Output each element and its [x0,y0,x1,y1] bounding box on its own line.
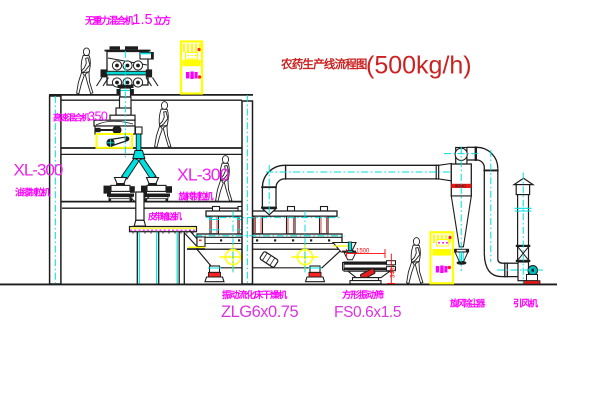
svg-text:1500: 1500 [356,248,370,254]
svg-text:皮带输送机: 皮带输送机 [147,211,182,222]
svg-text:ZLG6x0.75: ZLG6x0.75 [221,303,298,321]
svg-text:Φ600: Φ600 [455,184,466,189]
svg-text:振动流化床干燥机: 振动流化床干燥机 [222,289,288,300]
svg-text:引风机: 引风机 [513,298,539,309]
svg-text:旋转制粒机: 旋转制粒机 [178,191,214,202]
svg-text:农药生产线流程图: 农药生产线流程图 [280,57,367,71]
svg-text:(500kg/h): (500kg/h) [366,52,472,80]
svg-text:方形振动筛: 方形振动筛 [342,289,384,300]
svg-text:348: 348 [391,267,397,278]
svg-text:油漆制粒机: 油漆制粒机 [15,187,50,198]
svg-text:XL-300: XL-300 [14,161,63,180]
svg-text:XL-300: XL-300 [177,165,230,185]
svg-text:旋风除尘器: 旋风除尘器 [449,298,486,309]
svg-text:高速混合机350: 高速混合机350 [53,110,108,124]
svg-text:FS0.6x1.5: FS0.6x1.5 [334,304,401,321]
